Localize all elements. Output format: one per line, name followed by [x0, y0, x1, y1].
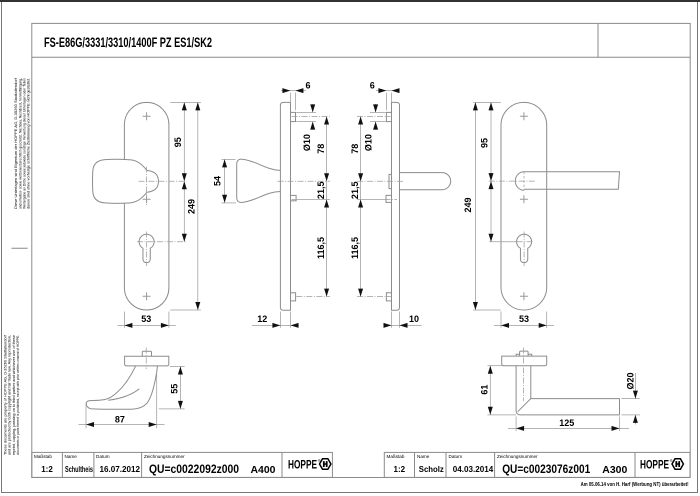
- svg-text:6: 6: [305, 80, 310, 90]
- svg-text:Zeichnungsnummer: Zeichnungsnummer: [144, 454, 185, 459]
- svg-text:Ø10: Ø10: [302, 134, 312, 151]
- svg-text:21,5: 21,5: [316, 182, 326, 200]
- svg-text:Scholz: Scholz: [419, 465, 444, 474]
- svg-text:78: 78: [350, 144, 360, 154]
- svg-text:53: 53: [141, 314, 151, 324]
- svg-text:16.07.2012: 16.07.2012: [100, 465, 141, 474]
- svg-text:116,5: 116,5: [316, 237, 326, 259]
- svg-text:A400: A400: [251, 464, 276, 476]
- svg-text:249: 249: [463, 197, 473, 212]
- svg-text:6: 6: [370, 80, 375, 90]
- svg-text:HOPPE: HOPPE: [640, 459, 669, 471]
- svg-text:A300: A300: [602, 464, 627, 476]
- svg-text:04.03.2014: 04.03.2014: [453, 465, 494, 474]
- svg-text:documents or parts thereof is: documents or parts thereof is prohibited…: [16, 335, 20, 455]
- svg-text:54: 54: [212, 176, 222, 186]
- svg-text:87: 87: [115, 415, 125, 425]
- svg-text:95: 95: [480, 138, 490, 148]
- svg-text:61: 61: [479, 385, 489, 395]
- svg-text:Schultheis: Schultheis: [65, 465, 93, 474]
- svg-text:1:2: 1:2: [394, 465, 406, 474]
- svg-text:1:2: 1:2: [41, 465, 53, 474]
- svg-text:Zeichnungsnummer: Zeichnungsnummer: [497, 454, 538, 459]
- svg-text:53: 53: [519, 314, 529, 324]
- svg-text:Datum: Datum: [96, 454, 110, 459]
- svg-text:21,5: 21,5: [350, 182, 360, 200]
- svg-text:Datum: Datum: [449, 454, 463, 459]
- svg-text:Name: Name: [417, 454, 430, 459]
- svg-text:QU=c0023076z001: QU=c0023076z001: [502, 462, 590, 476]
- svg-text:249: 249: [187, 199, 197, 214]
- svg-text:HOPPE: HOPPE: [288, 459, 317, 471]
- svg-text:116,5: 116,5: [350, 237, 360, 259]
- svg-text:Name: Name: [65, 454, 78, 459]
- svg-text:davon sind ohne vorherige schr: davon sind ohne vorherige schriftliche Z…: [27, 78, 31, 209]
- svg-text:95: 95: [173, 137, 183, 147]
- svg-text:10: 10: [409, 314, 419, 324]
- svg-text:FS-E86G/3331/3310/1400F PZ ES1: FS-E86G/3331/3310/1400F PZ ES1/SK2: [44, 34, 212, 50]
- svg-text:78: 78: [316, 144, 326, 154]
- svg-text:Maßstab: Maßstab: [387, 454, 405, 459]
- svg-text:12: 12: [257, 314, 267, 324]
- svg-text:125: 125: [559, 418, 574, 428]
- svg-text:Ø10: Ø10: [363, 134, 373, 151]
- svg-text:Am 05.06.14 von H. Harf (Werbu: Am 05.06.14 von H. Harf (Werbung NT) übe…: [581, 482, 689, 488]
- svg-text:Maßstab: Maßstab: [34, 454, 52, 459]
- svg-text:55: 55: [170, 384, 180, 394]
- svg-text:QU=c0022092z000: QU=c0022092z000: [149, 462, 239, 476]
- svg-text:Ø20: Ø20: [626, 372, 636, 389]
